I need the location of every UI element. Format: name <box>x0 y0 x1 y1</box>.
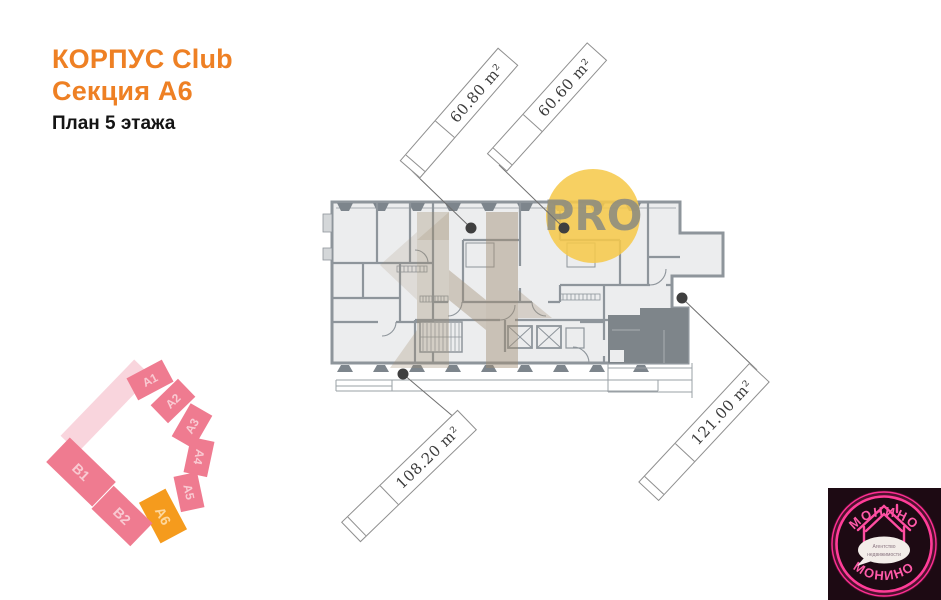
floorplan-flyer: PRO А1 А2 <box>0 0 941 600</box>
floor-subtitle: План 5 этажа <box>52 113 233 135</box>
section-title: Секция А6 <box>52 76 233 108</box>
logo-tagline-2: недвижимости <box>867 552 901 558</box>
utility-room <box>608 308 688 363</box>
agency-logo: МОНИНО МОНИНО Агентство недвижимости <box>828 488 941 600</box>
building-title: КОРПУС Club <box>52 44 233 76</box>
header: КОРПУС Club Секция А6 План 5 этажа <box>52 44 233 135</box>
pro-text: PRO <box>544 191 643 240</box>
logo-tagline-1: Агентство <box>873 544 896 550</box>
masterplan-diagram: А1 А2 А3 А4 А5 А6 B1 B2 <box>46 360 214 547</box>
elevator-shafts <box>508 326 584 348</box>
balconies <box>336 363 692 398</box>
